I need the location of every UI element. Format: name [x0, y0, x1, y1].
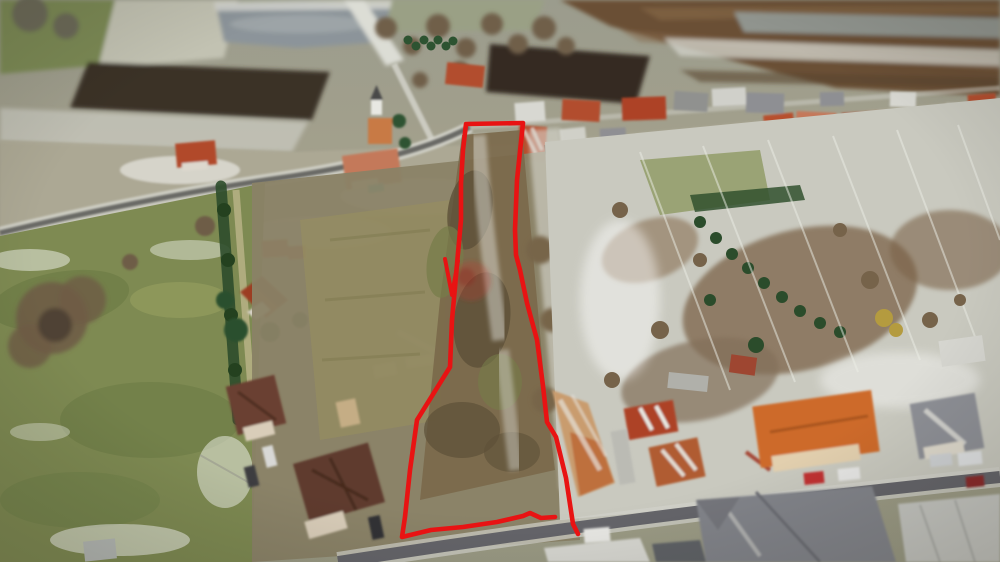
aerial-photo: [0, 0, 1000, 562]
vignette: [0, 0, 1000, 562]
photo-scene: [0, 0, 1000, 562]
watermark-inner: [457, 268, 475, 286]
